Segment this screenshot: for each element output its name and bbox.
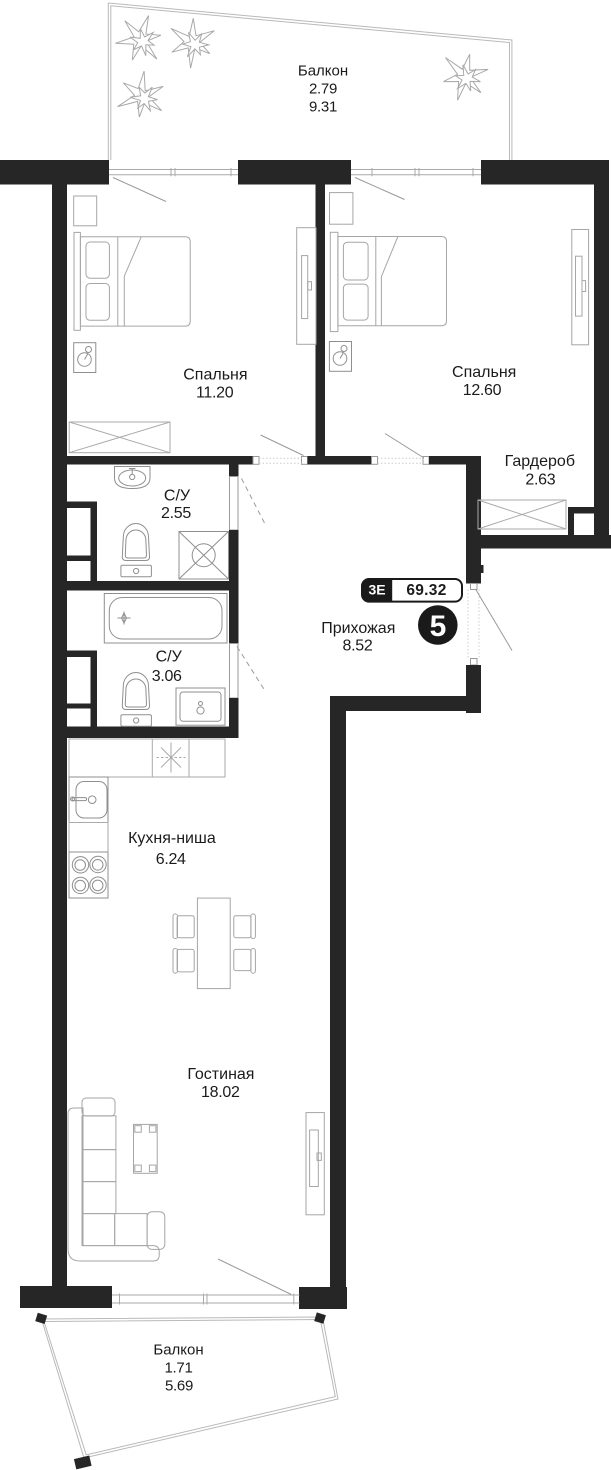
- svg-text:Спальня: Спальня: [452, 364, 516, 381]
- svg-text:3Е: 3Е: [368, 582, 385, 598]
- svg-text:18.02: 18.02: [201, 1084, 240, 1101]
- svg-text:Гардероб: Гардероб: [505, 453, 575, 470]
- svg-text:2.79: 2.79: [309, 81, 337, 98]
- svg-text:5: 5: [430, 610, 447, 643]
- svg-text:5.69: 5.69: [165, 1378, 193, 1395]
- svg-text:3.06: 3.06: [152, 668, 182, 685]
- svg-text:Гостиная: Гостиная: [187, 1066, 254, 1083]
- svg-text:Кухня-ниша: Кухня-ниша: [128, 830, 216, 847]
- svg-text:2.55: 2.55: [161, 505, 191, 522]
- svg-text:8.52: 8.52: [343, 638, 373, 655]
- svg-text:Спальня: Спальня: [183, 367, 247, 384]
- svg-text:Прихожая: Прихожая: [321, 620, 395, 637]
- svg-text:11.20: 11.20: [196, 385, 234, 402]
- svg-text:Балкон: Балкон: [153, 1342, 203, 1359]
- svg-text:69.32: 69.32: [406, 582, 446, 599]
- svg-text:2.63: 2.63: [525, 472, 555, 489]
- svg-text:1.71: 1.71: [165, 1360, 193, 1377]
- svg-text:Балкон: Балкон: [298, 63, 348, 80]
- svg-text:12.60: 12.60: [463, 382, 502, 399]
- svg-text:С/У: С/У: [156, 649, 183, 666]
- svg-text:С/У: С/У: [164, 488, 191, 505]
- svg-text:9.31: 9.31: [309, 99, 337, 116]
- svg-text:6.24: 6.24: [156, 851, 186, 868]
